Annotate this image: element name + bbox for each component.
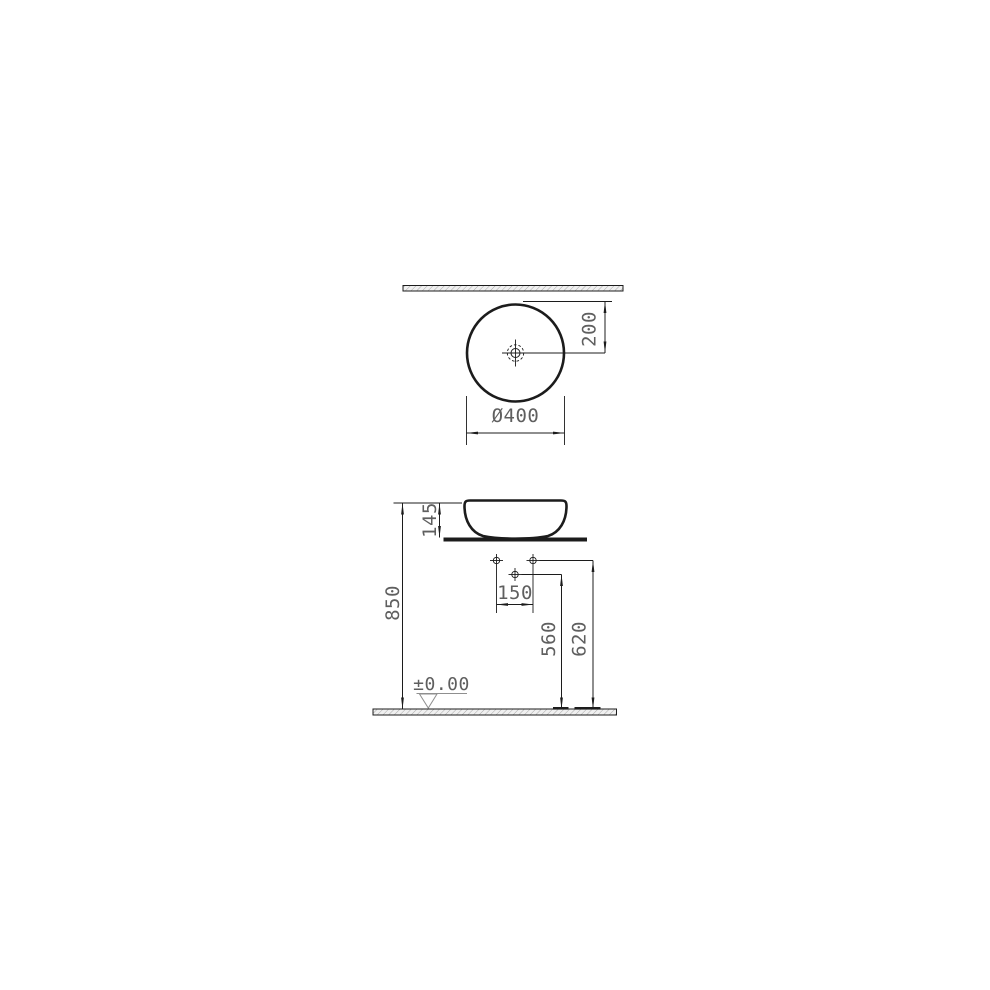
basin-profile [465, 501, 567, 539]
technical-drawing-canvas: 200 Ø400 145 850 [0, 0, 990, 990]
hole-symbol-left-icon [490, 554, 503, 567]
dim-850-label: 850 [382, 585, 404, 621]
dim-850: 850 [382, 503, 404, 709]
wall-section-bar [403, 286, 623, 292]
floor-datum-label: ±0.00 [413, 674, 470, 695]
dim-200-label: 200 [579, 311, 601, 347]
dim-620: 620 [569, 561, 594, 710]
hole-symbol-right-icon [527, 554, 540, 567]
top-view: 200 Ø400 [403, 286, 623, 446]
dim-145: 145 [419, 502, 441, 538]
floor-datum-triangle-icon [420, 694, 438, 708]
floor-datum: ±0.00 [413, 674, 470, 708]
dim-150-label: 150 [497, 582, 533, 604]
drawing-svg: 200 Ø400 145 850 [0, 0, 990, 990]
dim-620-label: 620 [569, 621, 591, 657]
dim-400-label: Ø400 [492, 405, 540, 427]
dim-diameter-400: Ø400 [467, 396, 565, 445]
hole-symbol-middle-icon [509, 568, 522, 581]
dim-560: 560 [538, 575, 562, 710]
floor-mark-right [575, 707, 601, 710]
floor-section-bar [373, 709, 617, 715]
dim-145-label: 145 [419, 502, 441, 538]
side-view: 145 850 150 [373, 501, 617, 716]
dim-560-label: 560 [538, 621, 560, 657]
floor-mark-left [553, 707, 569, 710]
